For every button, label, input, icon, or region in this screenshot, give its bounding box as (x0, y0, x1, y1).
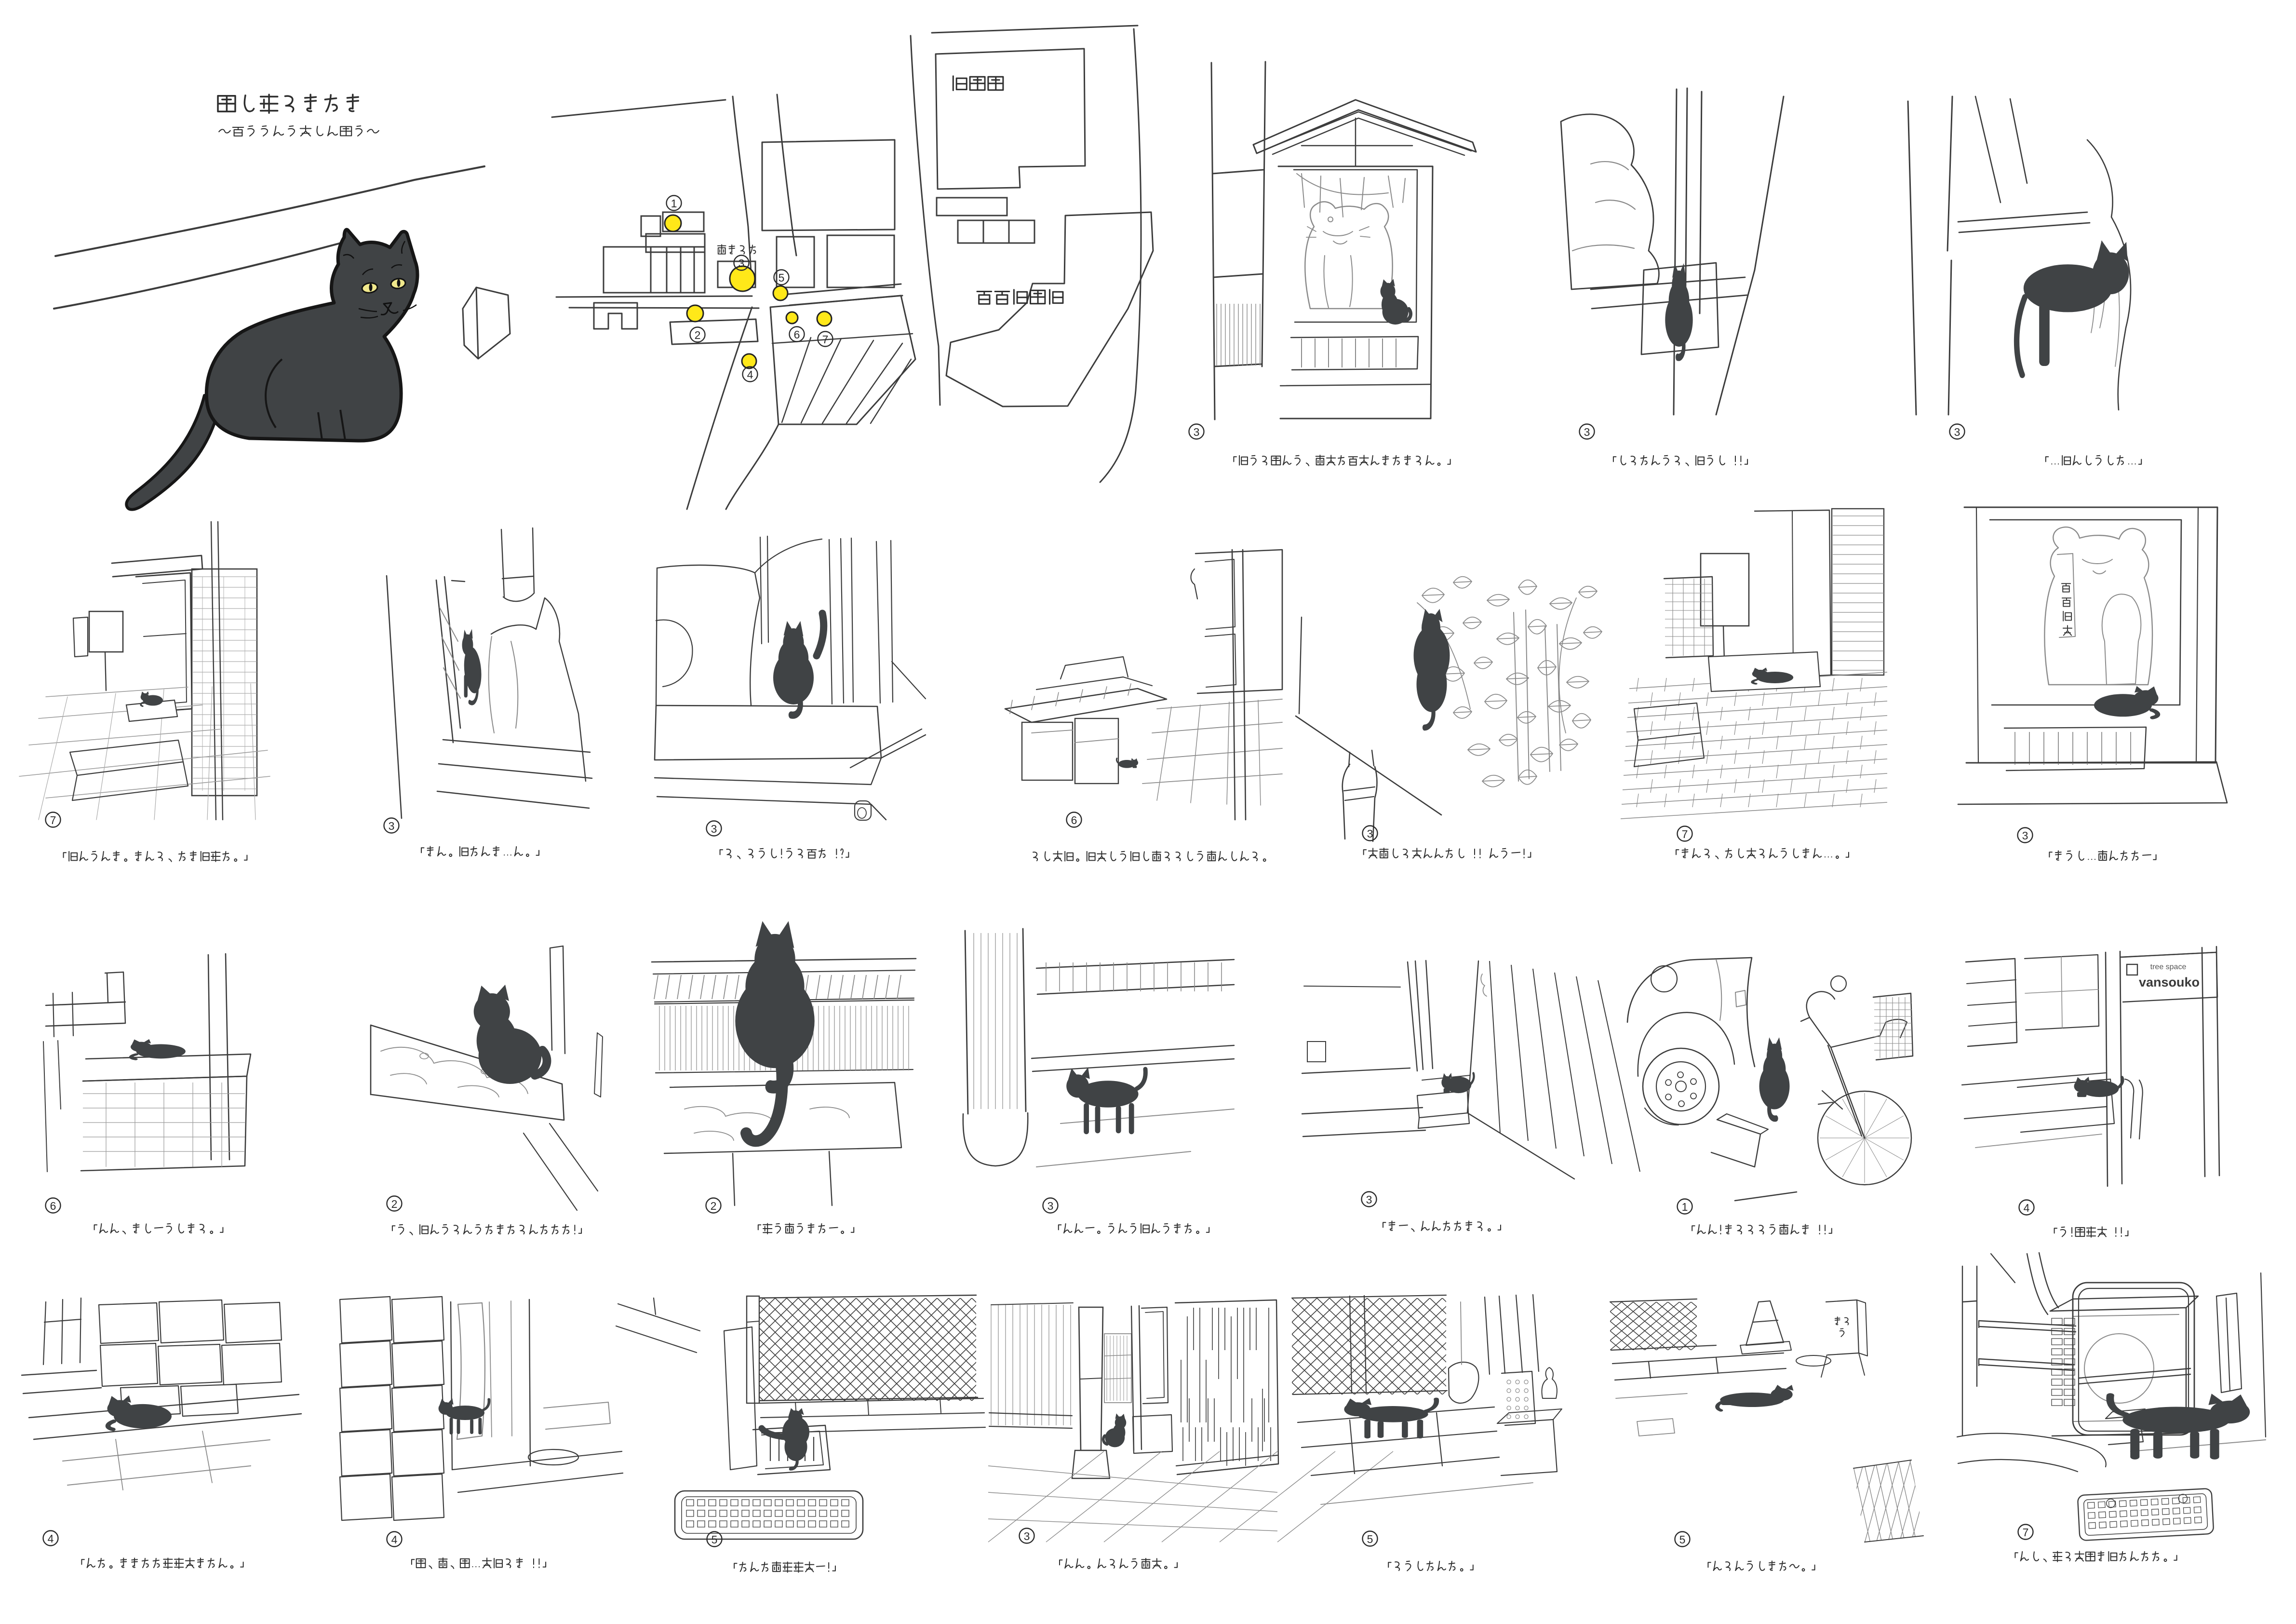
svg-text:3: 3 (1366, 1193, 1372, 1206)
svg-text:4: 4 (747, 368, 753, 381)
svg-text:3: 3 (738, 257, 745, 270)
svg-text:6: 6 (794, 328, 800, 341)
svg-text:5: 5 (779, 271, 785, 284)
svg-text:7: 7 (1682, 828, 1688, 840)
svg-text:4: 4 (48, 1532, 54, 1545)
svg-text:2: 2 (391, 1198, 398, 1210)
svg-text:2: 2 (711, 1200, 717, 1212)
svg-text:6: 6 (1071, 814, 1077, 826)
svg-text:4: 4 (391, 1533, 398, 1546)
svg-text:5: 5 (1367, 1533, 1373, 1545)
svg-text:3: 3 (1367, 827, 1373, 840)
svg-text:tree space: tree space (2150, 963, 2187, 971)
svg-text:7: 7 (50, 814, 56, 826)
svg-text:3: 3 (1194, 426, 1200, 438)
svg-text:2: 2 (695, 329, 701, 341)
svg-text:3: 3 (389, 820, 395, 832)
svg-text:1: 1 (1682, 1201, 1688, 1213)
svg-text:3: 3 (1047, 1200, 1054, 1212)
svg-text:3: 3 (2022, 829, 2028, 842)
svg-text:4: 4 (2024, 1202, 2030, 1214)
svg-text:5: 5 (1679, 1533, 1686, 1546)
svg-text:6: 6 (50, 1200, 56, 1212)
svg-text:7: 7 (2023, 1526, 2029, 1539)
svg-text:3: 3 (1584, 426, 1590, 438)
svg-text:vansouko: vansouko (2139, 975, 2200, 989)
svg-text:1: 1 (671, 197, 677, 210)
svg-text:3: 3 (1024, 1530, 1030, 1543)
svg-text:7: 7 (822, 333, 829, 346)
svg-text:5: 5 (712, 1533, 718, 1546)
svg-text:3: 3 (711, 823, 717, 835)
svg-text:3: 3 (1954, 426, 1960, 438)
